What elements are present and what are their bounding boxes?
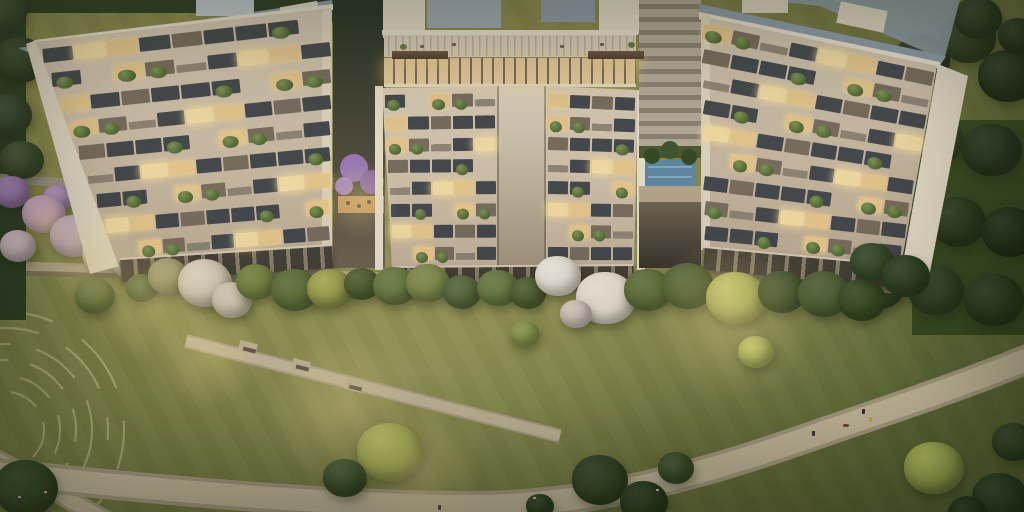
window-cell [592,96,613,109]
window-cell [613,204,633,217]
window-cell [385,95,406,108]
window-cell [90,91,120,108]
window-cell [302,95,331,112]
balcony-plant [456,164,468,175]
tree [323,459,367,498]
balcony-plant [417,252,428,263]
window-cell [149,188,174,204]
tree [738,336,774,368]
window-cell [256,204,280,220]
balcony-plant [861,202,877,215]
window-cell [191,132,219,149]
terrace-furniture [452,43,456,46]
window-cell [304,147,330,163]
window-cell [303,121,331,138]
window-cell [453,116,473,129]
awning [392,51,448,59]
window-cell [150,85,180,102]
distant-tower-facade [639,0,701,148]
window-cell [435,247,454,260]
window-cell [455,203,474,216]
palm-tree [644,148,660,164]
balcony-plant [259,210,274,223]
dog [843,424,849,427]
balcony-plant [572,230,584,241]
window-cell [570,160,590,173]
balcony-plant [572,187,584,198]
window-cell [476,203,495,216]
window-cell [409,138,429,151]
window-cell [123,190,148,206]
center-roof-box [599,0,641,34]
right-roof-box [742,0,788,13]
window-cell [411,182,431,195]
window-cell [412,203,431,216]
window-cell [181,210,205,226]
window-cell [115,241,138,257]
window-cell [408,116,428,129]
balcony-plant [616,187,628,198]
window-cell [434,203,453,216]
balcony-plant [479,208,491,219]
window-cell [196,158,222,174]
window-cell [592,139,612,152]
window-cell [454,181,474,194]
window-cell [430,116,450,129]
window-cell [591,247,611,260]
window-cell [754,231,778,247]
window-cell [591,204,611,217]
window-cell [780,210,805,226]
center-left-floors-row [387,137,495,151]
window-cell [570,225,590,238]
window-cell [414,247,433,260]
terrace-furniture [600,43,604,46]
window-cell [828,239,852,255]
pedestrian [438,503,441,510]
terrace-plant [628,42,635,48]
window-cell [235,232,258,248]
pedestrian [862,407,865,414]
window-cell [548,203,568,216]
window-cell [864,151,891,169]
window-cell [305,173,330,189]
window-cell [281,202,305,218]
window-cell [97,192,122,208]
window-cell [704,201,729,217]
balcony-plant [572,121,584,132]
tree [904,442,964,495]
window-cell [570,95,591,108]
balcony-plant [432,99,444,110]
window-cell [273,98,302,115]
window-cell [754,207,779,223]
window-cell [729,179,755,196]
window-cell [613,225,633,238]
center-left-pilaster [375,86,383,270]
window-cell [807,189,833,206]
window-cell [881,222,906,238]
window-cell [591,225,611,238]
window-cell [476,159,496,172]
tree [560,300,592,328]
window-cell [250,152,276,168]
tree [658,452,694,484]
jacaranda-tree [335,177,353,195]
window-cell [391,203,410,216]
window-cell [175,185,200,201]
tree [706,272,766,325]
window-cell [429,94,450,107]
pool-deck [639,186,701,202]
window-cell [392,225,411,238]
window-cell [388,160,408,173]
window-cell [187,235,210,251]
pedestrian [656,489,659,496]
window-cell [755,183,781,200]
window-cell [475,115,495,128]
window-cell [477,225,496,238]
window-cell [756,158,782,175]
window-cell [570,116,591,129]
window-cell [453,138,473,151]
window-cell [833,193,859,210]
window-cell [115,165,141,181]
center-left-floors-row [385,94,496,108]
window-cell [730,154,756,171]
window-cell [87,168,113,184]
window-cell [434,225,453,238]
balcony-plant [594,230,606,241]
left-roof-box [196,0,254,16]
balcony-plant [389,143,401,154]
window-cell [275,124,303,141]
window-cell [704,226,728,242]
window-cell [283,228,306,244]
tree [443,275,481,308]
balcony-plant [457,208,469,219]
window-cell [279,176,304,192]
tree [75,278,115,313]
window-cell [390,182,410,195]
window-cell [241,75,271,92]
window-cell [211,78,241,95]
center-right-floors-row [548,116,635,132]
window-cell [858,196,884,213]
center-left-floors-row [392,225,496,238]
window-cell [127,113,156,130]
center-right-floors-row [548,181,634,195]
balcony-plant [887,205,903,218]
center-left-floors-row [390,181,496,194]
window-cell [570,182,590,195]
window-cell [78,143,106,160]
window-cell [548,94,569,107]
window-cell [548,116,569,129]
window-cell [884,200,910,217]
tree [882,255,930,297]
tree [236,264,276,299]
window-cell [253,178,278,194]
window-cell [548,181,568,194]
window-cell [413,225,432,238]
center-left-floors-row [388,159,495,173]
pedestrian [869,415,872,422]
window-cell [548,225,568,238]
window-cell [163,237,186,253]
window-cell [805,213,830,229]
window-cell [231,206,255,222]
window-cell [548,137,568,150]
window-cell [474,94,495,107]
terrace-plant [400,44,407,50]
window-cell [614,140,634,153]
window-cell [452,94,473,107]
window-cell [157,110,186,127]
window-cell [307,226,330,242]
window-cell [271,72,301,89]
window-cell [477,247,496,260]
window-cell [219,129,247,146]
window-cell [729,229,753,245]
center-right-floors-row [548,203,633,217]
window-cell [614,118,635,131]
window-cell [106,141,134,158]
window-cell [614,161,634,174]
center-right-wing-facade [546,86,638,268]
window-cell [387,138,407,151]
window-cell [830,216,855,232]
right-courtyard-gap [639,0,701,268]
window-cell [163,135,191,152]
window-cell [131,215,155,231]
balcony-plant [616,144,628,155]
center-left-wing-facade [382,86,498,268]
balcony-plant [415,208,427,219]
window-cell [277,150,303,166]
window-cell [215,104,244,121]
center-roof-slab [541,0,595,22]
window-cell [570,138,590,151]
window-cell [106,217,130,233]
window-cell [98,116,127,133]
center-right-floors-row [548,159,634,174]
window-cell [244,101,273,118]
tree [838,279,886,321]
window-cell [548,159,568,172]
aerial-dusk-render [0,0,1024,512]
window-cell [476,181,496,194]
balcony-plant [550,121,562,132]
window-cell [433,181,453,194]
window-cell [432,160,452,173]
balcony-plant [412,143,424,154]
window-cell [181,82,211,99]
window-cell [613,183,633,196]
window-cell [454,159,474,172]
window-cell [60,95,90,112]
window-cell [456,247,475,260]
terrace-furniture [420,45,424,48]
window-cell [475,137,495,150]
pedestrian [533,497,536,504]
window-cell [206,208,230,224]
window-cell [570,203,590,216]
window-cell [386,117,406,130]
center-right-floors-row [548,225,633,238]
tree [357,423,423,481]
window-cell [778,234,802,250]
window-cell [729,204,754,220]
center-parapet [382,30,638,35]
pedestrian [18,496,21,503]
window-cell [201,183,226,199]
window-cell [393,247,412,260]
window-cell [223,155,249,171]
window-cell [227,181,252,197]
terrace-furniture [560,45,564,48]
center-core-strip [497,86,546,274]
tree [510,321,540,347]
window-cell [704,176,730,193]
center-left-floors-row [386,115,495,129]
glass-band [384,58,636,84]
window-cell [247,127,275,144]
window-cell [613,247,633,260]
palm-tree [661,141,679,159]
window-cell [301,69,331,86]
window-cell [592,182,612,195]
balcony-plant [454,99,466,110]
pedestrian [812,429,815,436]
window-cell [211,234,234,250]
window-cell [259,230,282,246]
window-cell [407,95,428,108]
center-left-floors-row [391,203,496,216]
window-cell [120,88,150,105]
window-cell [156,212,180,228]
window-cell [142,163,168,179]
window-cell [570,247,590,260]
window-cell [456,225,475,238]
window-cell [186,107,215,124]
balcony-plant [437,252,448,263]
window-cell [431,138,451,151]
window-cell [410,160,430,173]
center-roof-slab [427,0,501,28]
window-cell [803,236,827,252]
tree [535,256,581,296]
window-cell [592,160,612,173]
center-left-floors-row [393,247,496,260]
window-cell [139,239,162,255]
window-cell [614,97,635,110]
palm-tree [681,149,697,165]
pedestrian [44,491,47,498]
balcony-plant [387,100,399,111]
window-cell [856,219,881,235]
window-cell [135,138,163,155]
window-cell [169,160,195,176]
awning [588,51,644,59]
window-cell [306,200,330,216]
window-cell [69,119,98,136]
window-cell [781,186,807,203]
window-cell [592,117,613,130]
balcony-plant [275,78,293,92]
